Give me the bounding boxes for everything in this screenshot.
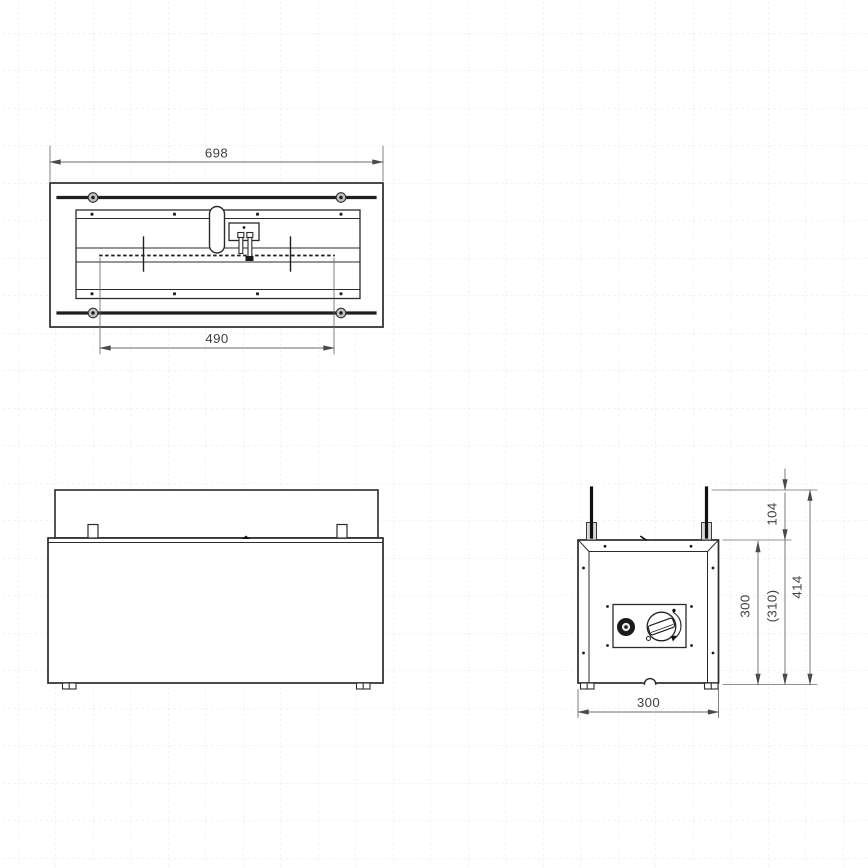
- ignition-box-screw: [243, 226, 246, 229]
- front-body-panel: [48, 538, 383, 683]
- electrode-tip: [246, 256, 254, 261]
- dim-rod-height-label: 104: [765, 502, 780, 525]
- mounting-bracket-left: [88, 525, 98, 539]
- dim-body-height-label: 300: [738, 594, 753, 617]
- dim-overall-height-label: 414: [790, 575, 805, 598]
- knob-detent-mark: [647, 637, 651, 641]
- front-view: [48, 490, 383, 689]
- pilot-capsule: [210, 207, 225, 254]
- dim-base-depth-label: 300: [637, 695, 660, 710]
- ignition-button: [617, 618, 635, 636]
- mounting-bracket-right: [337, 525, 347, 539]
- front-glass-panel: [55, 490, 378, 538]
- dim-body-height-ref-label: (310): [765, 590, 780, 623]
- technical-drawing: 698 490: [0, 0, 868, 868]
- grid: [0, 0, 868, 868]
- cable-notch: [644, 679, 655, 685]
- dim-overall-width-label: 698: [205, 146, 228, 161]
- dim-burner-length-label: 490: [205, 331, 228, 346]
